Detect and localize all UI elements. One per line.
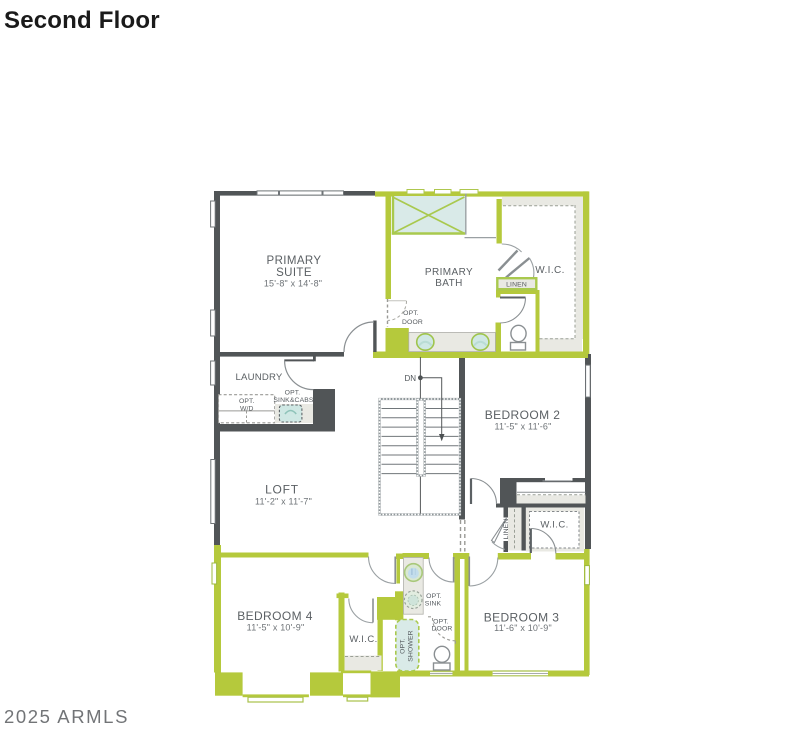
svg-text:DOOR: DOOR: [402, 319, 423, 326]
svg-text:OPT.: OPT.: [433, 618, 449, 625]
svg-text:OPT.: OPT.: [403, 310, 419, 317]
svg-text:SHOWER: SHOWER: [408, 630, 415, 662]
svg-text:Second Floor: Second Floor: [4, 7, 160, 34]
svg-text:DN: DN: [404, 374, 416, 383]
svg-text:LAUNDRY: LAUNDRY: [235, 372, 282, 383]
svg-text:15'-8" x 14'-8": 15'-8" x 14'-8": [264, 279, 322, 289]
svg-text:SINK&CABS: SINK&CABS: [273, 397, 314, 404]
svg-text:SINK: SINK: [425, 601, 442, 608]
svg-text:W.I.C.: W.I.C.: [349, 634, 377, 645]
svg-text:DOOR: DOOR: [432, 625, 453, 632]
svg-text:W.I.C.: W.I.C.: [540, 520, 568, 531]
svg-text:LINEN: LINEN: [503, 519, 510, 540]
svg-text:11'-5" x 11'-6": 11'-5" x 11'-6": [494, 422, 551, 432]
svg-text:BATH: BATH: [435, 278, 463, 289]
svg-text:W.I.C.: W.I.C.: [535, 265, 565, 276]
svg-text:11'-5" x 10'-9": 11'-5" x 10'-9": [247, 623, 305, 633]
svg-text:BEDROOM 2: BEDROOM 2: [485, 408, 561, 422]
svg-text:OPT.: OPT.: [239, 398, 255, 405]
svg-text:LINEN: LINEN: [506, 281, 527, 288]
svg-text:W/D: W/D: [240, 406, 254, 413]
svg-text:SUITE: SUITE: [276, 267, 312, 279]
svg-text:OPT.: OPT.: [285, 390, 301, 397]
svg-text:LOFT: LOFT: [265, 483, 299, 497]
svg-text:11'-2" x 11'-7": 11'-2" x 11'-7": [255, 496, 312, 506]
svg-text:BEDROOM 4: BEDROOM 4: [237, 609, 313, 623]
svg-text:OPT.: OPT.: [400, 638, 407, 654]
svg-text:11'-6" x 10'-9": 11'-6" x 10'-9": [494, 623, 552, 633]
svg-text:OPT.: OPT.: [426, 593, 442, 600]
svg-text:PRIMARY: PRIMARY: [267, 255, 322, 267]
svg-text:2025 ARMLS: 2025 ARMLS: [4, 706, 129, 727]
svg-text:PRIMARY: PRIMARY: [425, 267, 473, 278]
